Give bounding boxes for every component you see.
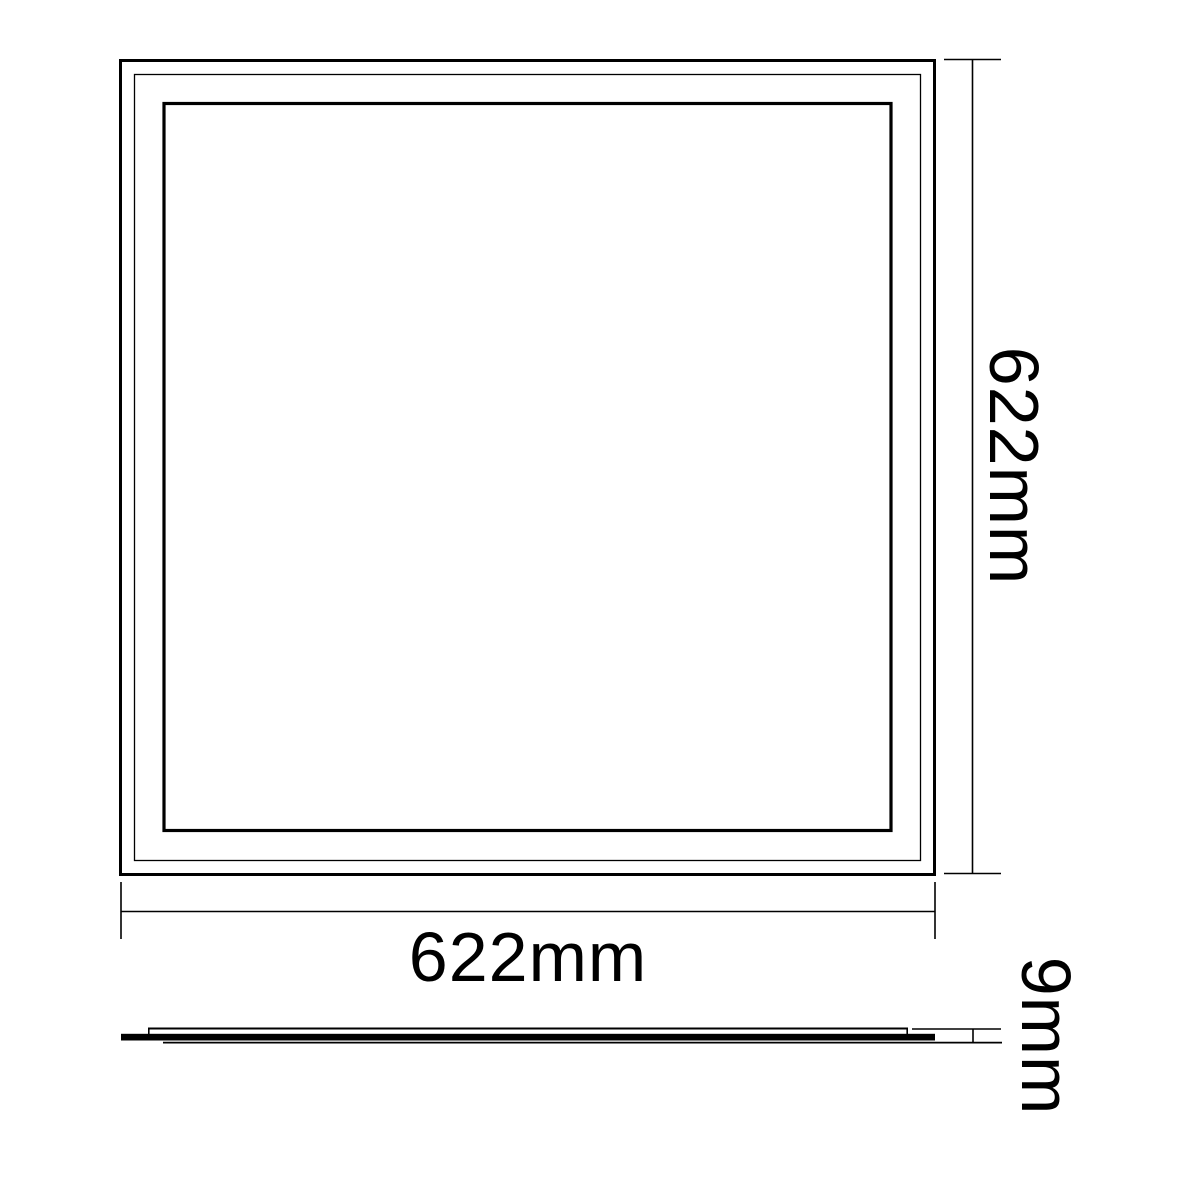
profile-body-band <box>121 1034 935 1041</box>
width-dimension-label: 622mm <box>409 918 647 996</box>
height-dimension-label: 622mm <box>975 347 1053 585</box>
panel-dimension-drawing: 622mm 622mm 9mm <box>0 0 1183 1183</box>
height-dimension: 622mm <box>944 60 1053 874</box>
front-view <box>121 61 935 875</box>
front-view-inner-light-area <box>164 104 891 831</box>
drawing-canvas: 622mm 622mm 9mm <box>0 0 1183 1183</box>
side-profile-view <box>121 1028 1002 1043</box>
thickness-dimension: 9mm <box>912 957 1085 1116</box>
width-dimension: 622mm <box>121 882 935 996</box>
thickness-dimension-label: 9mm <box>1007 957 1085 1116</box>
